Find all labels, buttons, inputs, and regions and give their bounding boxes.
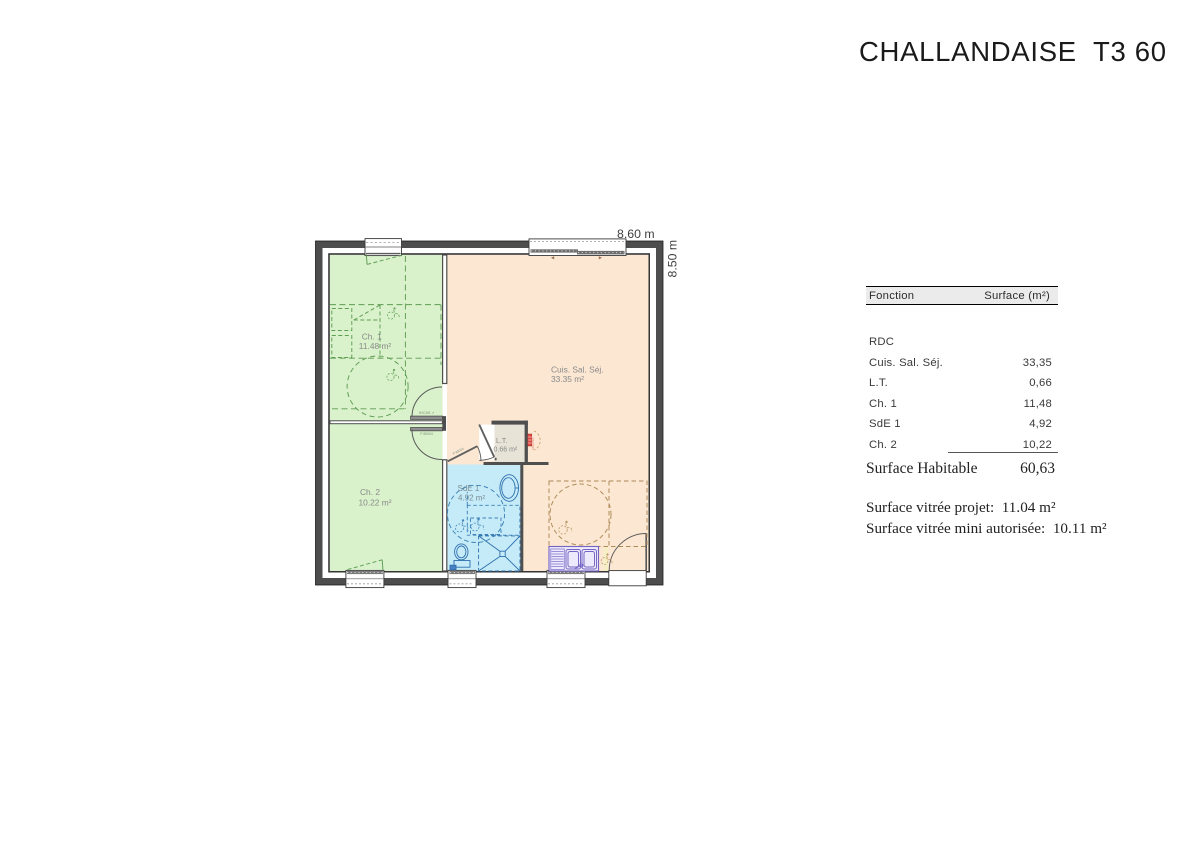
svg-text:P 85004: P 85004: [420, 432, 433, 436]
svg-text:8.60 m: 8.60 m: [617, 227, 655, 241]
svg-text:33.35 m²: 33.35 m²: [551, 374, 584, 384]
svg-text:11.48 m²: 11.48 m²: [359, 341, 392, 351]
svg-text:10.22 m²: 10.22 m²: [359, 498, 392, 508]
svg-text:Ch. 2: Ch. 2: [360, 487, 380, 497]
svg-text:L.T.: L.T.: [496, 438, 507, 445]
svg-text:PDL/TEL: PDL/TEL: [531, 437, 535, 450]
svg-text:8.50 m: 8.50 m: [666, 240, 680, 278]
svg-text:0.66 m²: 0.66 m²: [494, 447, 518, 454]
svg-text:HSCKB ↗: HSCKB ↗: [419, 411, 435, 415]
svg-text:4.92 m²: 4.92 m²: [458, 494, 485, 503]
svg-text:Cuis. Sal. Séj.: Cuis. Sal. Séj.: [551, 365, 604, 375]
